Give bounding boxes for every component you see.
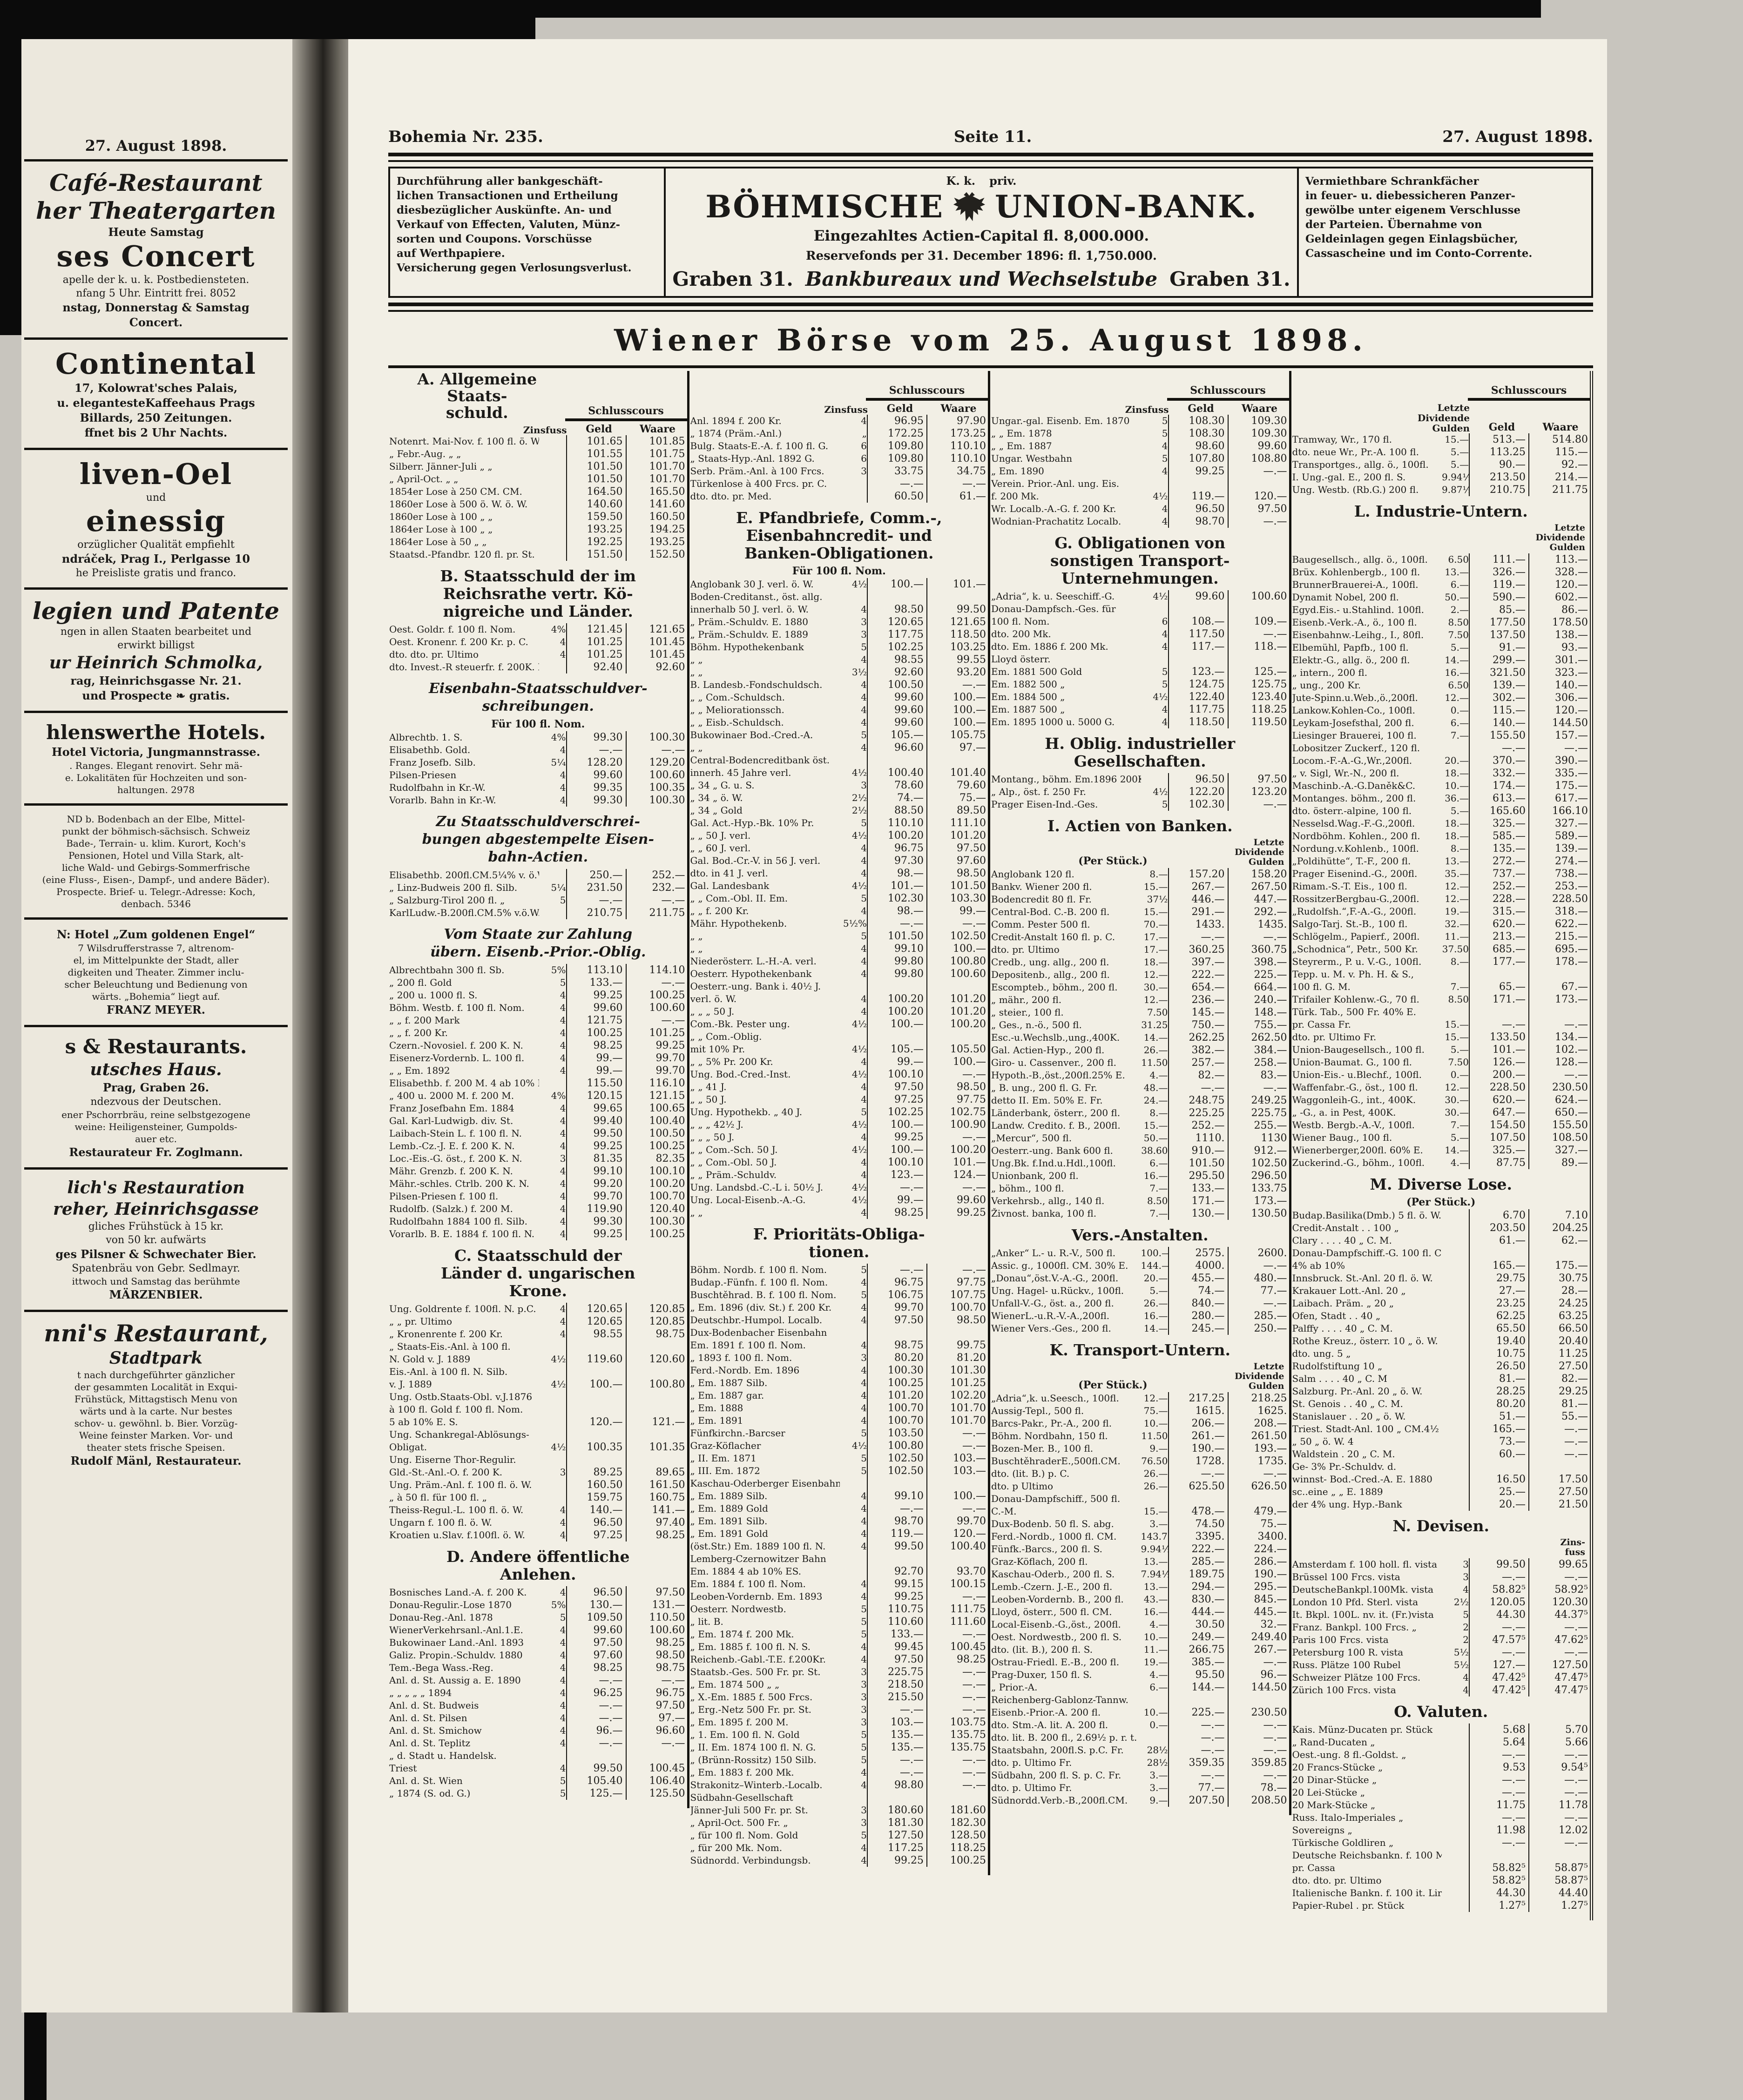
- security-name: dto. Invest.-R steuerfr. f. 200K. N.: [389, 661, 539, 673]
- security-name: dto. 200 Mk.: [991, 628, 1141, 640]
- zinsfuss-value: 3: [840, 1352, 867, 1364]
- security-name: Salgo-Tarj. St.-B., 100 fl.: [1292, 918, 1442, 930]
- table-row: Rudolfstiftung 10 „26.5027.50: [1292, 1360, 1590, 1373]
- geld-value: 123.—: [1168, 666, 1228, 678]
- geld-value: —.—: [1168, 1744, 1228, 1757]
- ad-line: hlenswerthe Hotels.: [25, 720, 287, 745]
- geld-value: 6.70: [1469, 1209, 1528, 1222]
- geld-value: 215.50: [867, 1691, 926, 1703]
- security-name: Länderbank, österr., 200 fl.: [991, 1107, 1141, 1119]
- table-row: „ „ Em. 1887498.6099.60: [991, 440, 1289, 452]
- table-row: Em. 1884 f. 100 fl. Nom.499.15100.15: [690, 1578, 988, 1590]
- zinsfuss-value: 4: [539, 1712, 566, 1724]
- zinsfuss-value: 5: [840, 1729, 867, 1741]
- ad-line: Restaurateur Fr. Zoglmann.: [25, 1145, 287, 1160]
- security-name: winnst- Bod.-Cred.-A. E. 1880: [1292, 1473, 1442, 1486]
- geld-value: 120.—: [566, 1416, 626, 1428]
- waare-value: 208.—: [1228, 1417, 1289, 1430]
- column-content: SchlusscoursLetzteDividendeGuldenGeldWaa…: [1291, 371, 1590, 1920]
- ad-line: Billards, 250 Zeitungen.: [25, 411, 287, 425]
- security-name: Amsterdam f. 100 holl. fl. vista: [1292, 1558, 1442, 1571]
- zinsfuss-value: [539, 1491, 566, 1504]
- security-name: Oesterr.-ung. Bank 600 fl.: [991, 1144, 1141, 1157]
- table-row: Franz Josefbahn Em. 1884499.65100.65: [389, 1102, 687, 1115]
- zinsfuss-value: 4%: [539, 623, 566, 636]
- zinsfuss-value: 4: [1141, 640, 1168, 653]
- waare-value: 62.—: [1528, 1234, 1590, 1247]
- security-name: Esc.-u.Wechslb.,ung.,400K.: [991, 1031, 1141, 1044]
- waare-value: —.—: [1228, 1297, 1289, 1310]
- geld-value: [566, 1366, 626, 1378]
- table-row: Em. 1882 500 „5124.75125.75: [991, 678, 1289, 691]
- zinsfuss-value: 12.—: [1442, 893, 1469, 905]
- geld-value: 325.—: [1469, 817, 1528, 830]
- geld-value: 102.25: [867, 1106, 926, 1118]
- geld-value: 225.—: [1168, 1706, 1228, 1719]
- waare-value: 121.65: [926, 616, 988, 628]
- zinsfuss-value: 4½: [1141, 490, 1168, 503]
- geld-value: —.—: [1168, 1731, 1228, 1744]
- section-title-line: H. Oblig. industrieller: [991, 735, 1289, 753]
- security-name: dto. (lit. B.), 200 fl. S.: [991, 1643, 1141, 1656]
- geld-value: 165.—: [1469, 1423, 1528, 1435]
- security-name: „ „ 41 J.: [690, 1081, 840, 1093]
- column-content: SchlusscoursZinsfussGeldWaareUngar.-gal.…: [990, 371, 1289, 1815]
- ad-line: gliches Frühstück à 15 kr.: [25, 1220, 287, 1233]
- waare-value: 138.—: [1528, 629, 1590, 641]
- geld-value: 620.—: [1469, 918, 1528, 930]
- security-name: Rudolfbahn in Kr.-W.: [389, 781, 539, 794]
- waare-value: 103.—: [926, 1465, 988, 1477]
- security-name: Union-Baumat. G., 100 fl.: [1292, 1056, 1442, 1069]
- table-row: Ofen, Stadt . . 40 „62.2563.25: [1292, 1310, 1590, 1322]
- table-row: Mähr. Hypothekenb.5½%—.——.—: [690, 917, 988, 930]
- bank-capital: Eingezahltes Actien-Capital fl. 8,000.00…: [672, 228, 1290, 244]
- geld-value: —.—: [1469, 1811, 1528, 1824]
- waare-value: 97.75: [926, 1276, 988, 1289]
- security-name: Eisenb.-Prior.-A. 200 fl.: [991, 1706, 1141, 1719]
- security-name: „Adria“,k. u.Seesch., 100fl.: [991, 1392, 1141, 1405]
- table-row: Vorarlb. B. E. 1884 f. 100 fl. N.499.251…: [389, 1228, 687, 1240]
- waare-value: 100.—: [926, 691, 988, 704]
- table-row: „ „ Com.-Sch. 50 J.4½100.—100.20: [690, 1144, 988, 1156]
- geld-value: 225.75: [867, 1666, 926, 1678]
- table-row: „ „ 5% Pr. 200 Kr.499.—100.—: [690, 1056, 988, 1068]
- table-row: Staatsbahn, 200fl.S. p.C. Fr.28½—.——.—: [991, 1744, 1289, 1757]
- security-name: „Adria“, k. u. Seeschiff.-G.: [991, 590, 1141, 603]
- table-row: Nordung.v.Kohlenb., 100fl.8.—135.—139.—: [1292, 842, 1590, 855]
- table-row: Loc.-Eis.-G. öst., f. 200 K. N.381.3582.…: [389, 1152, 687, 1165]
- waare-value: 125.75: [1228, 678, 1289, 691]
- table-row: Central-Bodencreditbank öst.: [690, 754, 988, 767]
- table-row: Rimam.-S.-T. Eis., 100 fl.12.—252.—253.—: [1292, 880, 1590, 893]
- bank-name-part2: UNION-BANK.: [995, 188, 1257, 225]
- security-name: Anl. d. St. Pilsen: [389, 1712, 539, 1724]
- table-row: „ B. ung., 200 fl. G. Fr.48.——.——.—: [991, 1082, 1289, 1094]
- zinsfuss-value: 0.—: [1442, 1069, 1469, 1081]
- security-name: „ „ Em. 1887: [991, 440, 1141, 452]
- zinsfuss-value: 4: [539, 1228, 566, 1240]
- waare-value: 101.—: [926, 578, 988, 591]
- table-row: 100 fl. G. M.7.—65.—67.—: [1292, 981, 1590, 993]
- waare-value: 100.25: [626, 1140, 687, 1152]
- section-title: O. Valuten.: [1292, 1703, 1590, 1721]
- table-row: „ Em. 1890499.25—.—: [991, 465, 1289, 478]
- bank-ad-right-line: der Parteien. Übernahme von: [1305, 217, 1585, 232]
- per-stueck-label: (Per Stück.): [991, 1379, 1235, 1391]
- table-row: Italienische Bankn. f. 100 it. Lire44.30…: [1292, 1887, 1590, 1899]
- geld-value: 85.—: [1469, 604, 1528, 616]
- geld-value: 315.—: [1469, 905, 1528, 918]
- newspaper-scan: 27. August 1898. Café-Restauranther Thea…: [0, 0, 1743, 2100]
- geld-value: 213.—: [1469, 930, 1528, 943]
- waare-value: 141.—: [626, 1504, 687, 1516]
- waare-value: 127.50: [1528, 1659, 1590, 1671]
- table-row: B. Landesb.-Fondschuldsch.4100.50—.—: [690, 679, 988, 691]
- waare-value: 194.25: [626, 523, 687, 536]
- waare-value: 100.70: [926, 1301, 988, 1314]
- security-name: Ung. Hagel- u.Rückv., 100fl.: [991, 1285, 1141, 1297]
- waare-value: —.—: [626, 976, 687, 989]
- zinsfuss-value: 43.—: [1141, 1593, 1168, 1606]
- geld-value: 77.—: [1168, 1782, 1228, 1794]
- security-name: Loc.-Eis.-G. öst., f. 200 K. N.: [389, 1152, 539, 1165]
- geld-value: —.—: [867, 1181, 926, 1194]
- waare-value: 44.40: [1528, 1887, 1590, 1899]
- waare-value: 360.75: [1228, 943, 1289, 956]
- ad-line: el, im Mittelpunkte der Stadt, aller: [25, 954, 287, 966]
- waare-value: 130.50: [1228, 1207, 1289, 1220]
- security-name: Elisabethb. 200fl.CM.5¼% v. ö.W.: [389, 869, 539, 882]
- security-name: Fünfk.-Barcs., 200 fl. S.: [991, 1543, 1141, 1555]
- security-name: verl. ö. W.: [690, 993, 840, 1005]
- waare-value: 100.60: [626, 1002, 687, 1014]
- section-title-line: Vom Staate zur Zahlung: [389, 926, 687, 943]
- table-row: Oesterr. Nordwestb.5110.75111.75: [690, 1603, 988, 1615]
- zinsfuss-value: 4: [539, 1504, 566, 1516]
- geld-value: 217.25: [1168, 1392, 1228, 1405]
- waare-value: 255.—: [1228, 1119, 1289, 1132]
- zinsfuss-value: 4: [840, 1414, 867, 1427]
- security-name: Dux-Bodenbacher Eisenbahn: [690, 1326, 840, 1339]
- geld-value: 101.65: [566, 435, 626, 448]
- table-row: 1860er Lose à 500 ö. W. ö. W.140.60141.6…: [389, 498, 687, 511]
- waare-value: 296.50: [1228, 1170, 1289, 1182]
- geld-value: 117.—: [1168, 640, 1228, 653]
- zinsfuss-value: 5: [1141, 666, 1168, 678]
- geld-value: 99.60: [566, 769, 626, 781]
- zinsfuss-value: 28½: [1141, 1757, 1168, 1769]
- geld-value: [867, 1553, 926, 1565]
- masthead-date: 27. August 1898.: [1442, 128, 1593, 146]
- security-name: Südbahn-Gesellschaft: [690, 1791, 840, 1804]
- geld-value: 102.50: [867, 1465, 926, 1477]
- waare-value: 135.75: [926, 1729, 988, 1741]
- zinsfuss-value: 4.—: [1141, 1618, 1168, 1631]
- table-row: Kais. Münz-Ducaten pr. Stück5.685.70: [1292, 1723, 1590, 1736]
- waare-value: 120.60: [626, 1353, 687, 1366]
- geld-value: 98.70: [1168, 515, 1228, 528]
- schlusscours-label: Schlusscours: [1468, 383, 1590, 401]
- security-name: Kais. Münz-Ducaten pr. Stück: [1292, 1723, 1442, 1736]
- waare-value: 480.—: [1228, 1272, 1289, 1285]
- table-row: Waffenfabr.-G., öst., 100 fl.12.—228.502…: [1292, 1081, 1590, 1094]
- section-title: Zu Staatsschuldverschrei-bungen abgestem…: [389, 813, 687, 866]
- waare-value: 175.—: [1528, 780, 1590, 792]
- waare-value: 384.—: [1228, 1044, 1289, 1057]
- geld-value: [1469, 1247, 1528, 1259]
- table-row: „ (Brünn-Rossitz) 150 Silb.5—.——.—: [690, 1754, 988, 1766]
- geld-value: 109.80: [867, 452, 926, 465]
- waare-value: 103.30: [926, 892, 988, 905]
- section-title-line: Vers.-Anstalten.: [991, 1226, 1289, 1244]
- security-name: „ 1874 (Präm.-Anl.): [690, 427, 840, 440]
- waare-label: Waare: [929, 403, 988, 415]
- table-row: „ lit. B.5110.60111.60: [690, 1615, 988, 1628]
- geld-value: 58.82⁵: [1469, 1874, 1528, 1887]
- zinsfuss-value: 3: [840, 1691, 867, 1703]
- waare-value: 30.75: [1528, 1272, 1590, 1285]
- zinsfuss-value: 4½: [1141, 786, 1168, 798]
- zinsfuss-value: 4: [840, 1056, 867, 1068]
- security-name: Sovereigns „: [1292, 1824, 1442, 1837]
- table-row: innerh. 45 Jahre verl.4½100.40101.40: [690, 767, 988, 779]
- geld-value: 654.—: [1168, 981, 1228, 994]
- waare-value: —.—: [926, 1264, 988, 1276]
- security-name: „ Staats-Eis.-Anl. à 100 fl.: [389, 1340, 539, 1353]
- table-row: dto. 200 Mk.4117.50—.—: [991, 628, 1289, 640]
- table-row: Sovereigns „11.9812.02: [1292, 1824, 1590, 1837]
- zinsfuss-value: 18.—: [1442, 830, 1469, 842]
- security-name: „ mähr., 200 fl.: [991, 994, 1141, 1006]
- waare-value: 100.40: [626, 1115, 687, 1127]
- section-title: I. Actien von Banken.: [991, 817, 1289, 835]
- table-row: Lemb.-Czern. J.-E., 200 fl.13.—294.—295.…: [991, 1581, 1289, 1593]
- ad-line: ffnet bis 2 Uhr Nachts.: [25, 425, 287, 440]
- waare-value: [1528, 1006, 1590, 1018]
- table-row: Ung.Bk. f.Ind.u.Hdl.,100fl.6.—101.50102.…: [991, 1157, 1289, 1170]
- waare-value: 100.15: [926, 1578, 988, 1590]
- table-row: Depositenb., allg., 200 fl.12.—222.—225.…: [991, 969, 1289, 981]
- security-name: Ung.Bk. f.Ind.u.Hdl.,100fl.: [991, 1157, 1141, 1170]
- geld-value: 159.75: [566, 1491, 626, 1504]
- bank-ad-right-line: gewölbe unter eigenem Verschlusse: [1305, 203, 1585, 217]
- section-title: L. Industrie-Untern.: [1292, 503, 1590, 520]
- geld-label: Geld: [1172, 403, 1230, 415]
- table-row: Paris 100 Frcs. vista247.57⁵47.62⁵: [1292, 1634, 1590, 1646]
- geld-value: 99.45: [867, 1641, 926, 1653]
- geld-value: 115.—: [1469, 704, 1528, 717]
- geld-value: 613.—: [1469, 792, 1528, 805]
- geld-value: 9.53: [1469, 1761, 1528, 1774]
- dividende-line: Gulden: [1535, 543, 1585, 552]
- security-name: Czern.-Novosiel. f. 200 K. N.: [389, 1039, 539, 1052]
- waare-value: 93.70: [926, 1565, 988, 1578]
- waare-label: Waare: [1531, 421, 1590, 433]
- zinsfuss-value: 4: [840, 1590, 867, 1603]
- table-row: Unionbank, 200 fl.16.—295.50296.50: [991, 1170, 1289, 1182]
- geld-value: 118.50: [1168, 716, 1228, 728]
- geld-value: —.—: [1168, 1467, 1228, 1480]
- waare-value: 92.60: [626, 661, 687, 673]
- geld-value: 107.80: [1168, 452, 1228, 465]
- waare-value: 119.50: [1228, 716, 1289, 728]
- waare-value: 102.75: [926, 1106, 988, 1118]
- subheader-line: Zinsfuss: [690, 404, 868, 415]
- zinsfuss-value: 4: [539, 1649, 566, 1662]
- security-name: Nesselsd.Wag.-F.-G.,200fl.: [1292, 817, 1442, 830]
- section-title-line: Krone.: [389, 1282, 687, 1300]
- table-row: Ung. Hypothekb. „ 40 J.5102.25102.75: [690, 1106, 988, 1118]
- zinsfuss-value: 4: [840, 741, 867, 754]
- waare-value: [926, 980, 988, 993]
- waare-value: —.—: [1528, 1448, 1590, 1461]
- security-name: Triest: [389, 1762, 539, 1775]
- geld-value: 99.40: [566, 1115, 626, 1127]
- geld-value: 23.25: [1469, 1297, 1528, 1310]
- table-row: Graz-Köflacher4½100.80—.—: [690, 1440, 988, 1452]
- table-row: „ Linz-Budweis 200 fl. Silb.5¼231.50232.…: [389, 882, 687, 894]
- geld-value: 117.75: [1168, 703, 1228, 716]
- waare-value: 89.65: [626, 1466, 687, 1479]
- ad-oliven-oel-weinessig: liven-Oelundeinessigorzüglicher Qualität…: [24, 450, 288, 590]
- geld-value: 74.50: [1168, 1518, 1228, 1530]
- zinsfuss-value: [1442, 1849, 1469, 1862]
- ad-line: und Prospecte ❧ gratis.: [25, 688, 287, 703]
- section-title-line: übern. Eisenb.-Prior.-Oblig.: [389, 943, 687, 961]
- waare-value: 29.25: [1528, 1385, 1590, 1398]
- zinsfuss-value: 4: [840, 1842, 867, 1854]
- geld-value: 139.—: [1469, 679, 1528, 692]
- waare-value: 97.50: [1228, 503, 1289, 515]
- waare-value: 110.10: [926, 440, 988, 452]
- geld-value: 99.80: [867, 955, 926, 968]
- security-name: Escompteb., böhm., 200 fl.: [991, 981, 1141, 994]
- table-row: „ 34 „ ö. W.2½74.—75.—: [690, 792, 988, 804]
- zinsfuss-value: 4: [539, 1636, 566, 1649]
- table-row: Franz Josefb. Silb.5¼128.20129.20: [389, 756, 687, 769]
- ad-line: Stadtpark: [25, 1347, 287, 1369]
- waare-value: 100.20: [926, 1144, 988, 1156]
- waare-value: 109.30: [1228, 415, 1289, 427]
- security-name: Zuckerind.-G., böhm., 100fl.: [1292, 1157, 1442, 1169]
- security-name: Anl. d. St. Teplitz: [389, 1737, 539, 1750]
- table-row: Lemberg-Czernowitzer Bahn: [690, 1553, 988, 1565]
- geld-value: [1168, 603, 1228, 615]
- waare-value: 63.25: [1528, 1310, 1590, 1322]
- bank-reserve: Reservefonds per 31. December 1896: fl. …: [672, 249, 1290, 263]
- waare-value: 120.—: [1528, 579, 1590, 591]
- table-row: Silberr. Jänner-Juli „ „101.50101.70: [389, 460, 687, 473]
- table-row: „ „ f. 200 Kr.498.—99.—: [690, 905, 988, 917]
- table-row: „ Salzburg-Tirol 200 fl. „5—.——.—: [389, 894, 687, 907]
- zinsfuss-value: 16.—: [1141, 1170, 1168, 1182]
- waare-value: 109.—: [1228, 615, 1289, 628]
- waare-value: 100.10: [626, 1165, 687, 1178]
- table-row: „ à 50 fl. für 100 fl. „159.75160.75: [389, 1491, 687, 1504]
- geld-value: 133.—: [867, 1628, 926, 1641]
- bank-ad-left-line: diesbezüglicher Auskünfte. An- und: [397, 203, 657, 217]
- ad-line: ngen in allen Staaten bearbeitet und: [25, 625, 287, 639]
- table-row: Elektr.-G., allg. ö., 200 fl.14.—299.—30…: [1292, 654, 1590, 666]
- dividende-line: Letzte: [1535, 523, 1585, 533]
- table-row: „ „ 50 J.497.2597.75: [690, 1093, 988, 1106]
- zinsfuss-value: 5: [840, 1106, 867, 1118]
- bank-address: Graben 31. Bankbureaux und Wechselstube …: [672, 268, 1290, 290]
- geld-value: —.—: [1168, 1082, 1228, 1094]
- table-row: dto. dto. pr. Ultimo4101.25101.45: [389, 648, 687, 661]
- geld-value: 125.—: [566, 1787, 626, 1800]
- waare-value: —.—: [1528, 1435, 1590, 1448]
- table-row: Ung. Präm.-Anl. f. 100 fl. ö. W.160.5016…: [389, 1479, 687, 1491]
- table-row: winnst- Bod.-Cred.-A. E. 188016.5017.50: [1292, 1473, 1590, 1486]
- right-page: Bohemia Nr. 235. Seite 11. 27. August 18…: [348, 39, 1607, 2012]
- table-row: 1854er Lose à 250 CM. CM.164.50165.50: [389, 485, 687, 498]
- waare-value: 20.40: [1528, 1335, 1590, 1347]
- zinsfuss-value: [1141, 653, 1168, 666]
- table-row: Ostrau-Friedl. E.-B., 200 fl.19.—385.——.…: [991, 1656, 1289, 1669]
- waare-value: 160.75: [626, 1491, 687, 1504]
- geld-value: 98.80: [867, 1779, 926, 1791]
- security-name: Elektr.-G., allg. ö., 200 fl.: [1292, 654, 1442, 666]
- waare-value: —.—: [1228, 515, 1289, 528]
- zinsfuss-value: 4: [840, 704, 867, 716]
- waare-value: 261.50: [1228, 1430, 1289, 1442]
- dividende-line: Zins-: [1561, 1538, 1585, 1548]
- table-row: Donau-Reg.-Anl. 18785109.50110.50: [389, 1611, 687, 1624]
- zinsfuss-label: Zinsfuss: [690, 404, 871, 415]
- waare-value: [926, 1030, 988, 1043]
- geld-value: 171.—: [1469, 993, 1528, 1006]
- waare-value: 120.85: [626, 1303, 687, 1315]
- waare-value: 101.45: [626, 636, 687, 648]
- zinsfuss-value: [1442, 1272, 1469, 1285]
- table-row: Ung. Eiserne Thor-Regulir.: [389, 1454, 687, 1466]
- geld-value: 620.—: [1469, 1094, 1528, 1106]
- geld-value: 99.50: [867, 1540, 926, 1553]
- table-row: „ Em. 1895 f. 200 M.3103.—103.75: [690, 1716, 988, 1729]
- zinsfuss-value: 4: [840, 1301, 867, 1314]
- waare-value: 97.60: [926, 855, 988, 867]
- security-name: „ 34 „ Gold: [690, 804, 840, 817]
- waare-value: 99.70: [626, 1052, 687, 1064]
- table-row: Montanges. böhm., 200 fl.36.—613.—617.—: [1292, 792, 1590, 805]
- zinsfuss-value: 5: [840, 1289, 867, 1301]
- geld-value: 99.25: [867, 1131, 926, 1144]
- waare-value: 120.40: [626, 1203, 687, 1215]
- security-name: Em. 1895 1000 u. 5000 G.: [991, 716, 1141, 728]
- page-number: Seite 11.: [543, 128, 1442, 146]
- waare-value: 228.50: [1528, 893, 1590, 905]
- waare-value: —.—: [1228, 1082, 1289, 1094]
- geld-value: 99.60: [566, 1002, 626, 1014]
- waare-value: 98.50: [626, 1649, 687, 1662]
- zinsfuss-value: [840, 1553, 867, 1565]
- section-title-line: K. Transport-Untern.: [991, 1341, 1289, 1359]
- zinsfuss-value: 4: [840, 1490, 867, 1502]
- waare-value: 101.75: [626, 448, 687, 460]
- zinsfuss-value: [1442, 742, 1469, 754]
- zinsfuss-value: [539, 661, 566, 673]
- waare-value: 78.—: [1228, 1782, 1289, 1794]
- zinsfuss-value: 4½: [1141, 590, 1168, 603]
- table-row: 1864er Lose à 50 „ „192.25193.25: [389, 536, 687, 548]
- zinsfuss-value: 17.—: [1141, 931, 1168, 943]
- security-name: Ung. Eiserne Thor-Regulir.: [389, 1454, 539, 1466]
- zinsfuss-value: [1442, 1398, 1469, 1410]
- zinsfuss-value: [539, 1428, 566, 1441]
- table-row: Triest. Stadt-Anl. 100 „ CM.4½165.——.—: [1292, 1423, 1590, 1435]
